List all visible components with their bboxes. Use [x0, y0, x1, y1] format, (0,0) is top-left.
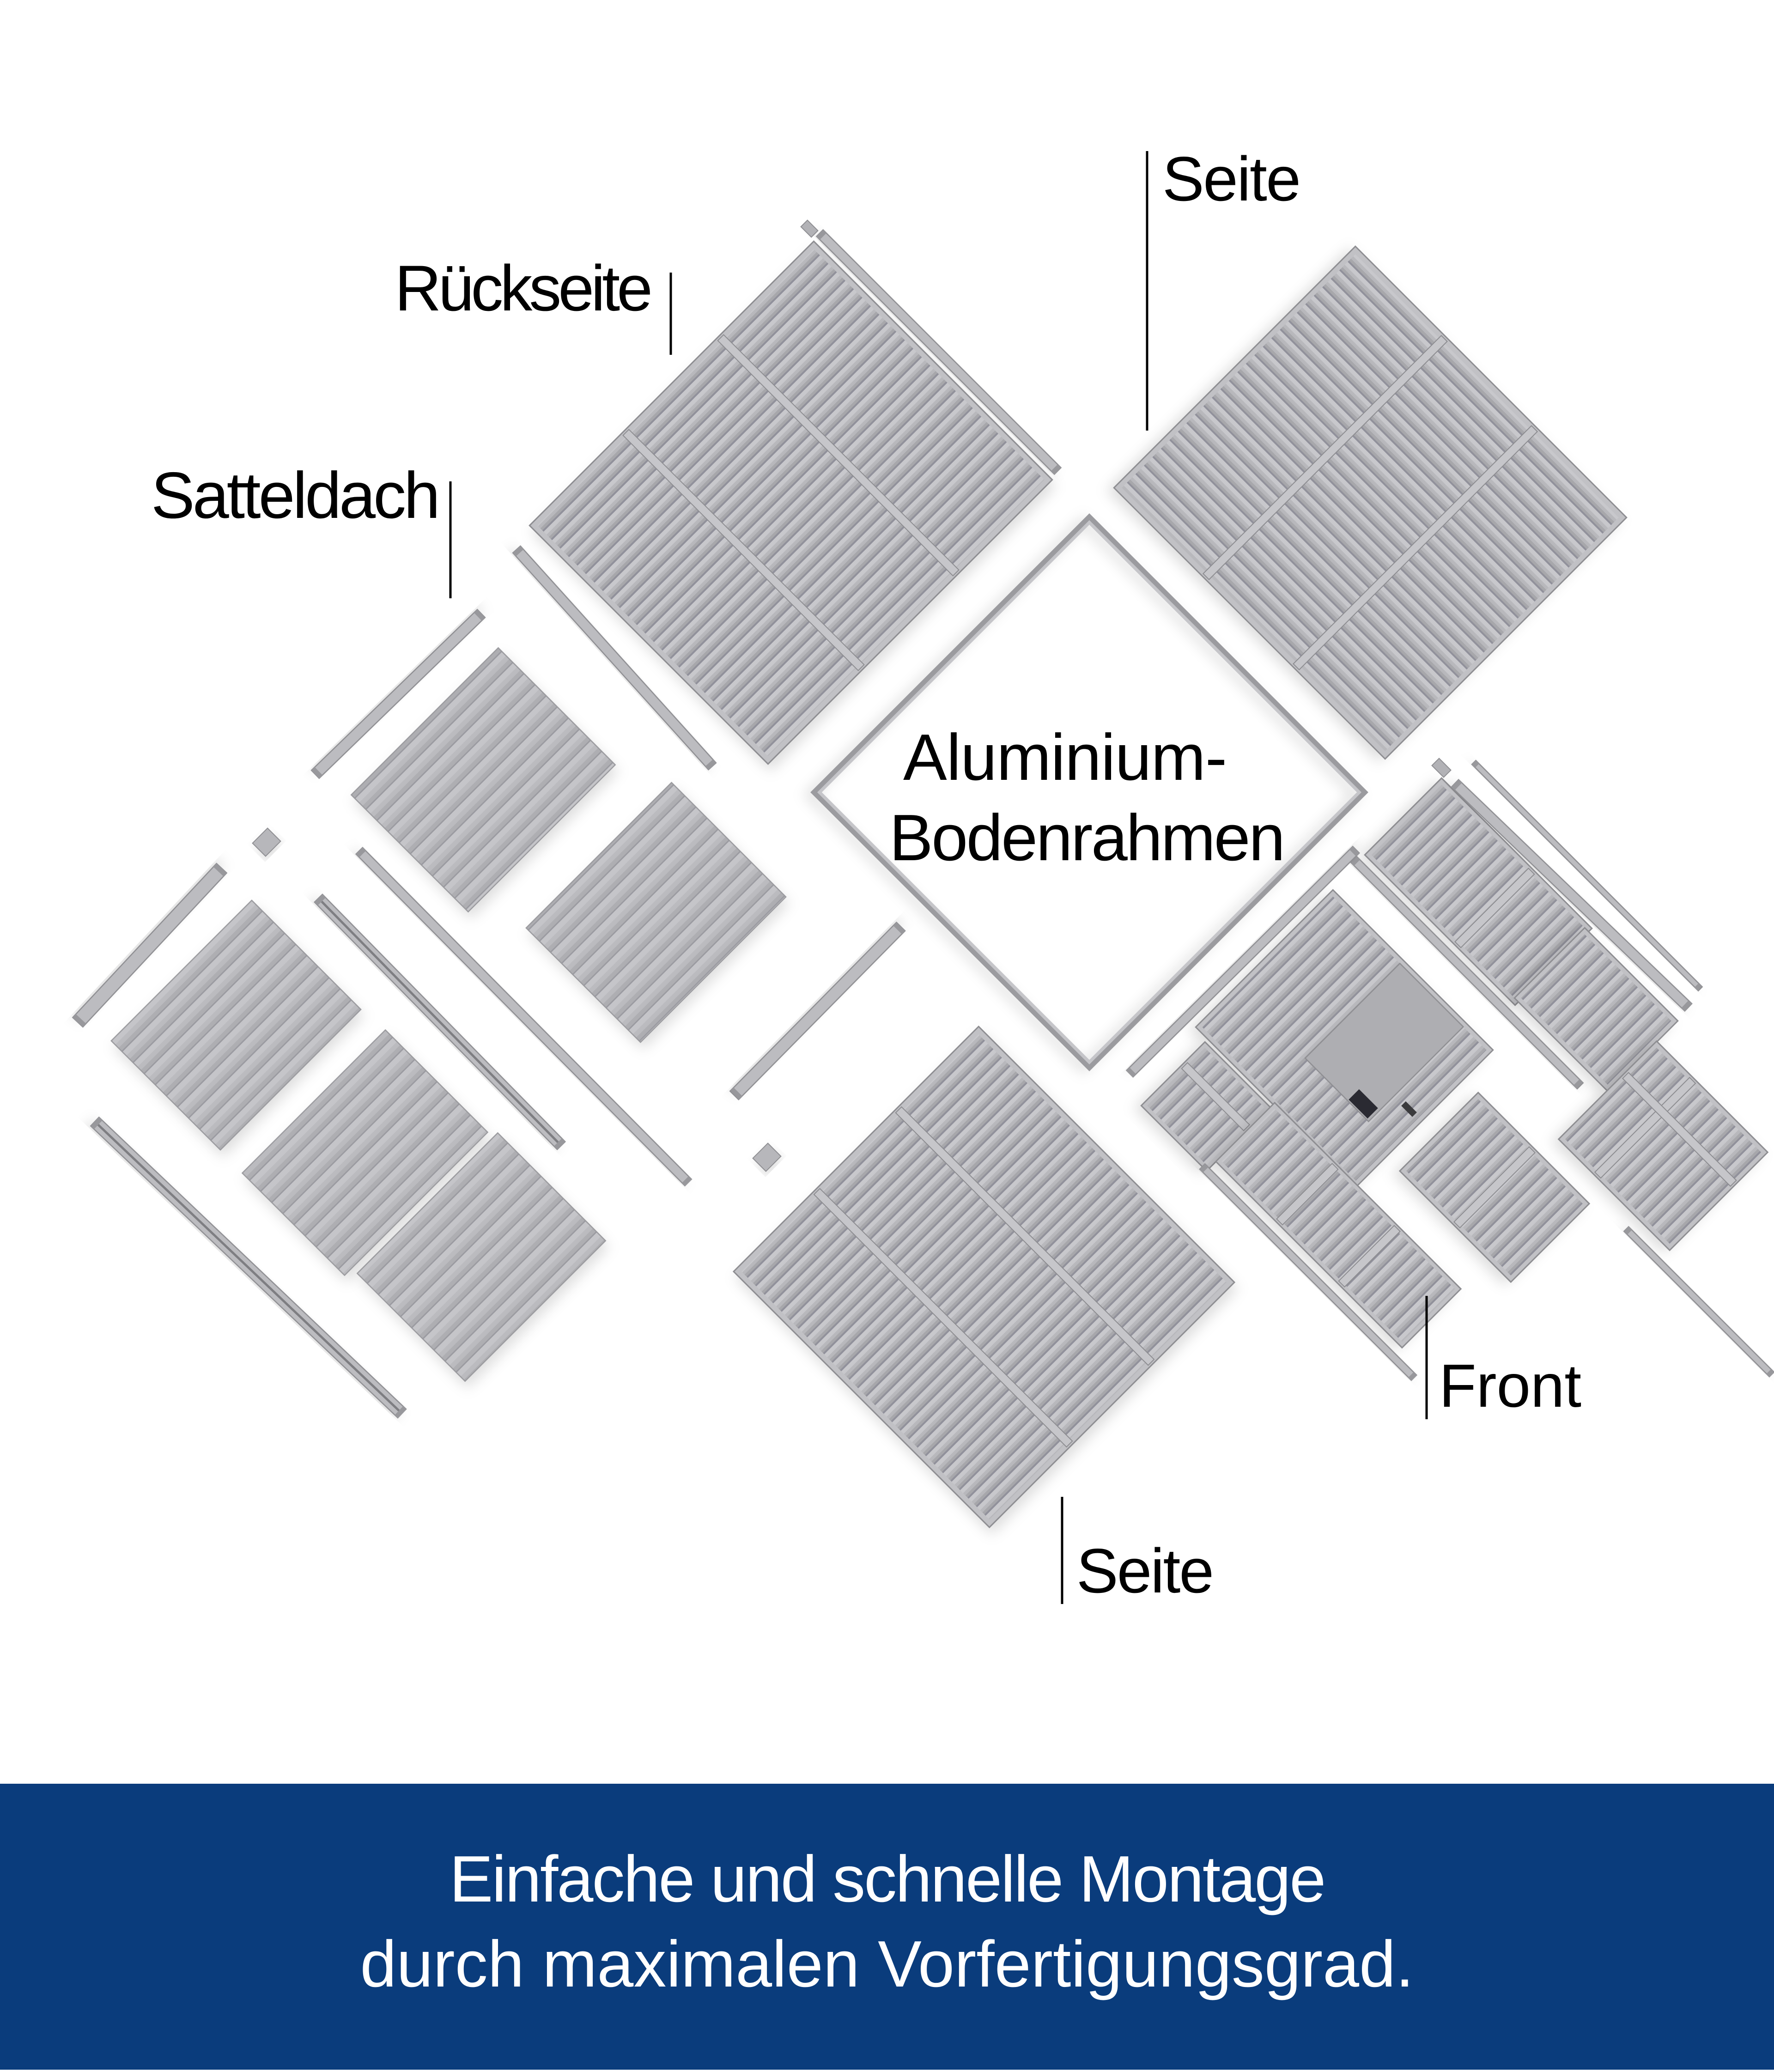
svg-text:Satteldach: Satteldach: [151, 459, 438, 532]
svg-text:Einfache und schnelle Montage: Einfache und schnelle Montage: [450, 1842, 1324, 1916]
svg-text:Aluminium-: Aluminium-: [903, 721, 1227, 794]
svg-text:Front: Front: [1439, 1352, 1581, 1420]
svg-text:Rückseite: Rückseite: [395, 252, 650, 324]
svg-text:durch maximalen Vorfertigungsg: durch maximalen Vorfertigungsgrad.: [360, 1927, 1414, 2001]
svg-text:Bodenrahmen: Bodenrahmen: [889, 801, 1284, 875]
svg-text:Seite: Seite: [1076, 1536, 1213, 1606]
svg-text:Seite: Seite: [1162, 144, 1300, 214]
